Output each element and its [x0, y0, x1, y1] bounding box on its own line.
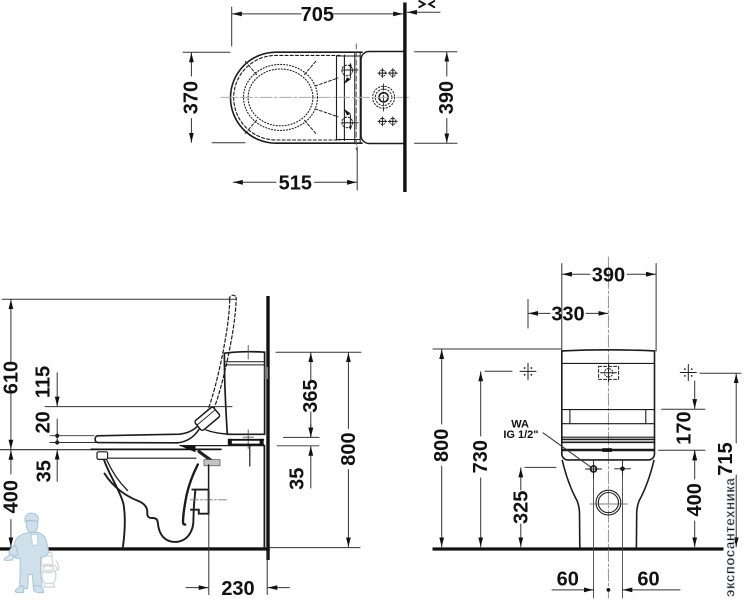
svg-text:610: 610 [0, 361, 22, 394]
svg-text:390: 390 [592, 265, 625, 287]
svg-text:730: 730 [470, 440, 492, 473]
svg-text:экспосантехника: экспосантехника [723, 478, 738, 597]
svg-text:390: 390 [436, 81, 458, 114]
svg-text:IG 1/2": IG 1/2" [503, 429, 538, 441]
svg-text:715: 715 [715, 442, 737, 475]
svg-text:325: 325 [510, 491, 532, 524]
svg-text:330: 330 [551, 304, 584, 326]
svg-text:365: 365 [300, 379, 322, 412]
svg-text:35: 35 [34, 460, 56, 482]
svg-text:515: 515 [279, 173, 312, 195]
svg-text:115: 115 [33, 366, 55, 398]
svg-text:170: 170 [673, 411, 695, 444]
svg-text:60: 60 [637, 569, 659, 591]
svg-text:20: 20 [33, 411, 55, 433]
svg-text:800: 800 [431, 429, 453, 462]
svg-text:60: 60 [557, 569, 579, 591]
svg-text:705: 705 [301, 4, 334, 26]
svg-text:35: 35 [287, 468, 309, 490]
svg-text:400: 400 [0, 480, 22, 513]
svg-text:400: 400 [684, 483, 706, 516]
svg-text:800: 800 [338, 432, 360, 465]
svg-text:230: 230 [221, 578, 254, 600]
svg-text:370: 370 [181, 81, 203, 114]
